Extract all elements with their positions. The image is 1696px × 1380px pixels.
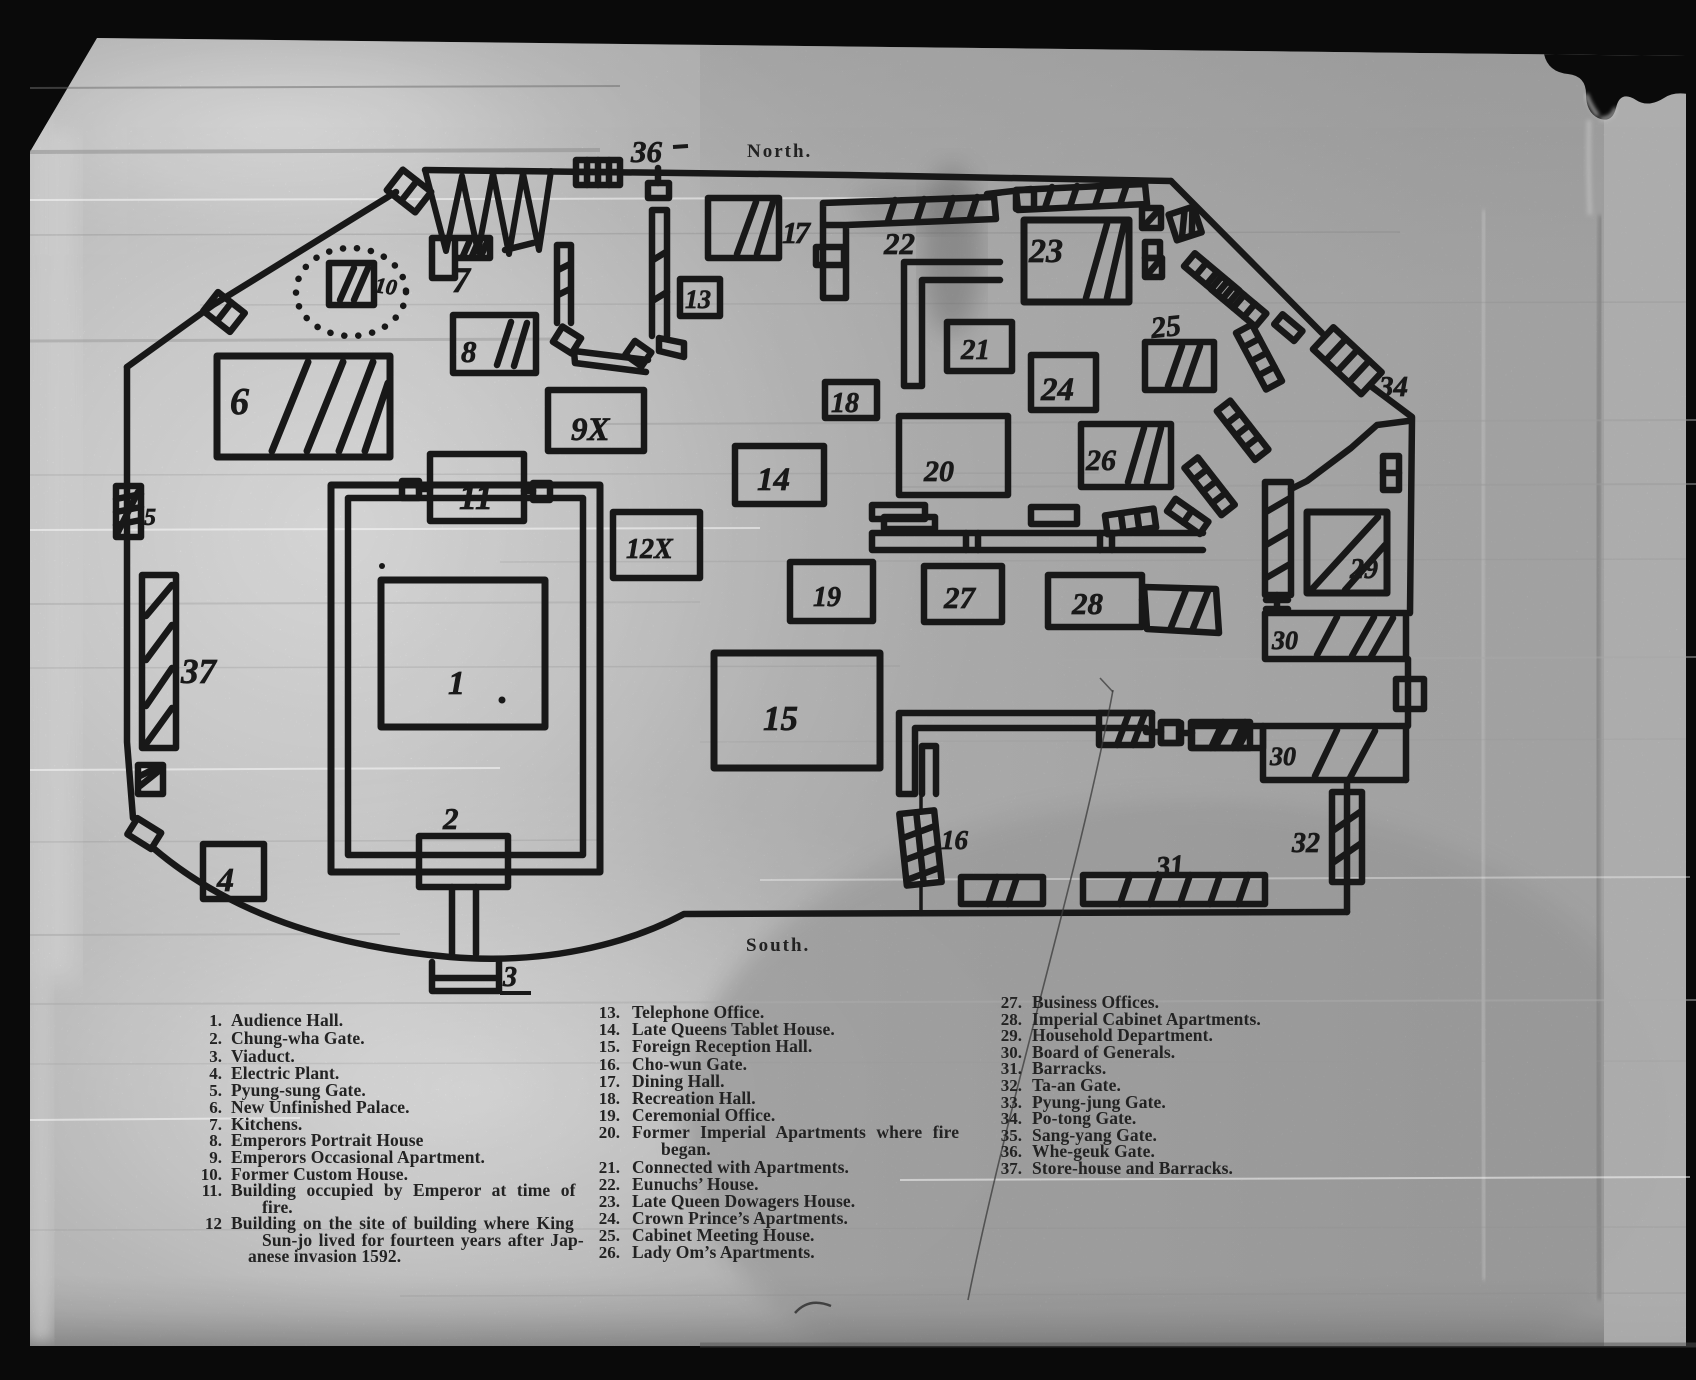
svg-text:North.: North. <box>747 141 812 162</box>
svg-text:12X: 12X <box>626 534 674 565</box>
svg-text:30: 30 <box>1271 626 1298 655</box>
svg-text:2: 2 <box>442 801 459 836</box>
svg-text:14: 14 <box>757 462 790 498</box>
svg-text:20: 20 <box>923 455 954 488</box>
svg-text:20.: 20. <box>599 1123 620 1142</box>
svg-text:29: 29 <box>1349 554 1378 585</box>
svg-text:South.: South. <box>746 935 810 956</box>
svg-text:31: 31 <box>1154 850 1186 883</box>
svg-text:10: 10 <box>373 272 398 300</box>
svg-text:11: 11 <box>459 477 493 517</box>
svg-text:2.: 2. <box>209 1029 222 1048</box>
svg-text:anese invasion 1592.: anese invasion 1592. <box>248 1246 401 1266</box>
svg-text:26: 26 <box>1085 444 1116 477</box>
svg-text:9X: 9X <box>571 412 611 448</box>
svg-text:Lady Om’s Apartments.: Lady Om’s Apartments. <box>632 1242 815 1262</box>
svg-text:23: 23 <box>1028 233 1063 270</box>
svg-text:Chung-wha Gate.: Chung-wha Gate. <box>231 1028 365 1048</box>
svg-text:began.: began. <box>661 1139 711 1159</box>
svg-text:15: 15 <box>763 699 798 738</box>
svg-text:18: 18 <box>831 388 859 419</box>
svg-text:25: 25 <box>1148 309 1182 345</box>
svg-text:Audience Hall.: Audience Hall. <box>231 1010 343 1030</box>
svg-text:37.: 37. <box>1001 1159 1022 1178</box>
svg-text:15.: 15. <box>599 1037 620 1056</box>
svg-text:Store-house and Barracks.: Store-house and Barracks. <box>1032 1158 1233 1178</box>
svg-text:24: 24 <box>1040 372 1074 408</box>
svg-text:32: 32 <box>1291 828 1320 859</box>
svg-text:12: 12 <box>205 1214 222 1233</box>
svg-text:28: 28 <box>1071 586 1104 621</box>
svg-text:7: 7 <box>452 260 472 300</box>
svg-text:4: 4 <box>216 862 234 899</box>
svg-text:22: 22 <box>883 226 915 261</box>
svg-text:27: 27 <box>943 580 977 615</box>
svg-text:19: 19 <box>813 582 841 613</box>
svg-text:1: 1 <box>448 665 465 702</box>
svg-text:3: 3 <box>502 962 517 993</box>
svg-text:6: 6 <box>230 381 249 423</box>
svg-text:34: 34 <box>1378 371 1408 403</box>
svg-text:21: 21 <box>960 334 990 366</box>
svg-text:16: 16 <box>941 825 969 855</box>
svg-text:8: 8 <box>461 334 477 369</box>
svg-text:37: 37 <box>180 652 218 691</box>
svg-text:11.: 11. <box>202 1181 222 1200</box>
svg-text:36: 36 <box>630 134 663 169</box>
svg-text:13: 13 <box>685 285 711 314</box>
svg-text:5: 5 <box>144 505 156 531</box>
svg-text:1.: 1. <box>209 1011 222 1030</box>
svg-text:30: 30 <box>1269 742 1296 771</box>
svg-text:26.: 26. <box>599 1243 620 1262</box>
svg-text:Foreign Reception Hall.: Foreign Reception Hall. <box>632 1036 812 1056</box>
